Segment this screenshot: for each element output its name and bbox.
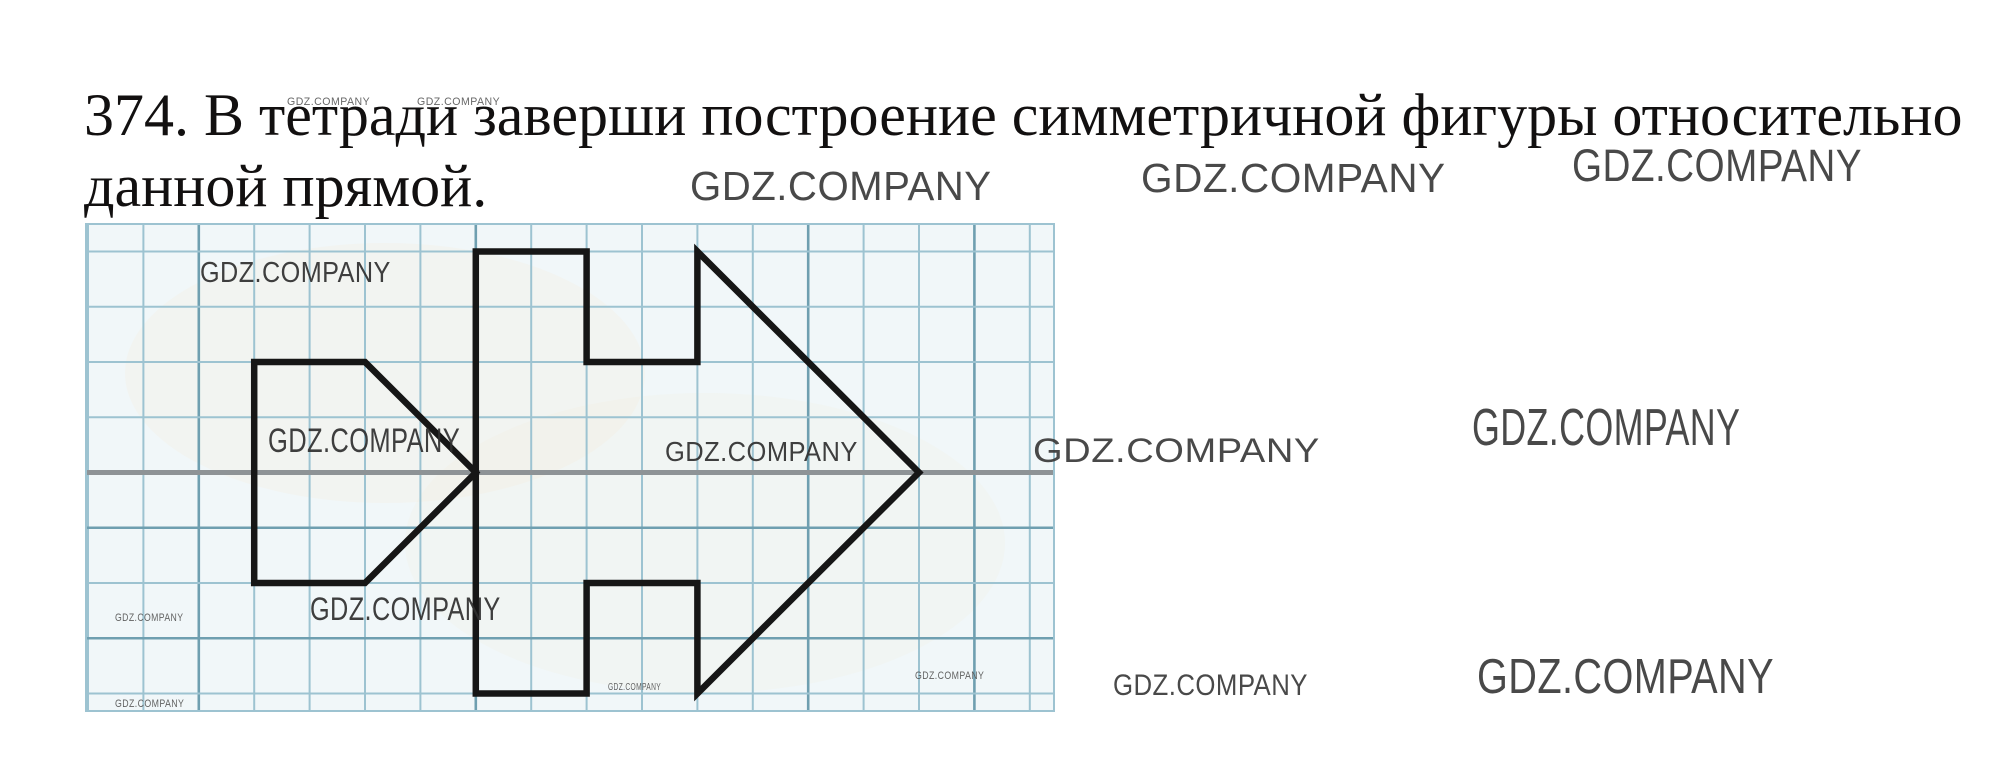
watermark: GDZ.COMPANY: [1033, 432, 1320, 471]
watermark: GDZ.COMPANY: [608, 682, 661, 694]
watermark: GDZ.COMPANY: [200, 257, 391, 290]
watermark: GDZ.COMPANY: [115, 612, 183, 625]
watermark: GDZ.COMPANY: [665, 436, 858, 468]
grid-figure-image: [85, 223, 1055, 712]
watermark: GDZ.COMPANY: [1572, 140, 1862, 192]
watermark: GDZ.COMPANY: [1477, 649, 1774, 705]
page: 374. В тетради заверши построение симмет…: [0, 0, 2011, 782]
watermark: GDZ.COMPANY: [310, 591, 501, 628]
watermark: GDZ.COMPANY: [915, 670, 984, 683]
notebook-grid-svg: [85, 223, 1055, 712]
task-title-line2: данной прямой.: [84, 153, 487, 219]
watermark: GDZ.COMPANY: [690, 163, 992, 210]
watermark: GDZ.COMPANY: [1472, 399, 1740, 459]
watermark: GDZ.COMPANY: [115, 698, 184, 711]
task-title-line1: 374. В тетради заверши построение симмет…: [84, 82, 1962, 148]
watermark: GDZ.COMPANY: [287, 96, 370, 109]
watermark: GDZ.COMPANY: [417, 96, 500, 109]
watermark: GDZ.COMPANY: [1113, 669, 1308, 704]
watermark: GDZ.COMPANY: [268, 422, 460, 461]
watermark: GDZ.COMPANY: [1141, 155, 1446, 202]
